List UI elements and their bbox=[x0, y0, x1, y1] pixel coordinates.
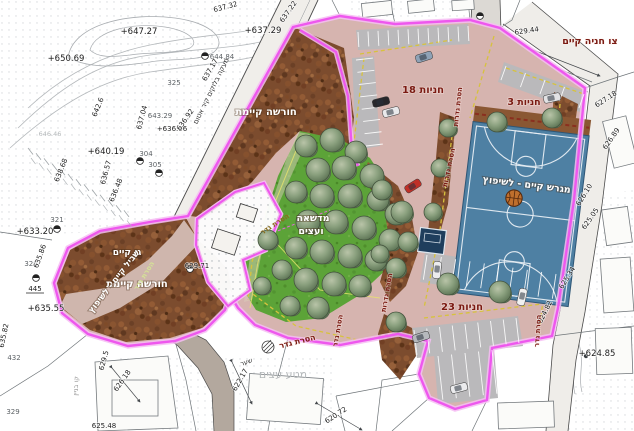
area-label-grove-upper: חורשה קיימת bbox=[235, 107, 297, 118]
olive-tree bbox=[272, 260, 293, 280]
site-plan-canvas: מגרש קיים - לשיפוץ +647.27 +650.69 +637.… bbox=[0, 0, 634, 431]
olive-tree bbox=[322, 272, 347, 296]
manhole-symbol bbox=[33, 275, 40, 282]
parking-23-label: 23 חניות bbox=[441, 302, 483, 313]
olive-tree bbox=[285, 181, 308, 203]
olive-tree bbox=[294, 268, 319, 292]
spot-elevation: 445 bbox=[28, 285, 41, 293]
spot-elevation: +635.55 bbox=[28, 304, 65, 314]
remove-fence-note: הסרת גדר bbox=[533, 314, 543, 347]
olive-tree bbox=[310, 240, 335, 264]
olive-tree bbox=[489, 281, 512, 303]
spot-elevation: +640.19 bbox=[88, 147, 125, 157]
spot-elevation: +624.85 bbox=[579, 349, 616, 359]
spot-elevation: +633.20 bbox=[17, 227, 54, 237]
olive-tree bbox=[372, 180, 393, 200]
olive-tree bbox=[285, 237, 308, 259]
existing-parking-label: צו חניה קיים bbox=[562, 36, 617, 47]
parking-3-label: 3 חניות bbox=[507, 97, 540, 108]
spot-elevation: +637.29 bbox=[245, 26, 282, 36]
olive-tree bbox=[307, 297, 330, 319]
spot-elevation: 305 bbox=[148, 161, 161, 169]
olive-tree bbox=[338, 184, 363, 208]
spot-elevation: 629.71 bbox=[185, 262, 210, 270]
manhole-symbol bbox=[54, 226, 61, 233]
spot-elevation: 432 bbox=[7, 354, 20, 362]
olive-tree bbox=[338, 244, 363, 268]
olive-tree bbox=[386, 312, 407, 332]
olive-tree bbox=[320, 128, 345, 152]
area-label-lawn-2: ועצים bbox=[298, 226, 323, 237]
olive-tree bbox=[306, 158, 331, 182]
spot-elevation: 635.82 bbox=[0, 323, 11, 349]
olive-tree bbox=[352, 216, 377, 240]
area-label-lawn-1: מדשאה bbox=[296, 213, 329, 224]
spot-elevation: 321 bbox=[50, 216, 63, 224]
olive-tree bbox=[542, 108, 563, 128]
spot-elevation: 643.29 bbox=[148, 112, 173, 120]
spot-elevation: 325 bbox=[167, 79, 180, 87]
manhole-symbol bbox=[202, 53, 209, 60]
spot-elevation: 304 bbox=[139, 150, 153, 158]
olive-tree bbox=[391, 201, 414, 223]
manhole-symbol bbox=[137, 158, 144, 165]
orchard-bg-label: מטע עצים bbox=[259, 368, 307, 381]
building-line-label: קו בניין bbox=[71, 376, 80, 396]
olive-tree bbox=[332, 156, 357, 180]
olive-tree bbox=[424, 203, 443, 221]
parking-18-label: 18 חניות bbox=[402, 85, 444, 96]
olive-tree bbox=[398, 232, 419, 252]
olive-tree bbox=[310, 184, 335, 208]
survey-circle-symbol bbox=[262, 340, 274, 353]
manhole-symbol bbox=[156, 170, 163, 177]
spot-elevation: 646.46 bbox=[39, 130, 62, 138]
spot-elevation: 635.86 bbox=[32, 243, 48, 269]
olive-tree bbox=[295, 135, 318, 157]
site-plan-drawing: מגרש קיים - לשיפוץ +647.27 +650.69 +637.… bbox=[0, 0, 634, 431]
spot-elevation: +647.27 bbox=[121, 27, 158, 37]
olive-tree bbox=[253, 277, 272, 295]
manhole-symbol bbox=[477, 13, 484, 20]
olive-tree bbox=[280, 296, 301, 316]
olive-tree bbox=[371, 245, 390, 263]
spot-elevation: 329 bbox=[6, 408, 19, 416]
olive-tree bbox=[349, 275, 372, 297]
parked-car bbox=[432, 261, 442, 279]
spot-elevation: +650.69 bbox=[48, 54, 85, 64]
olive-tree bbox=[487, 112, 508, 132]
spot-elevation: 625.48 bbox=[92, 422, 117, 430]
court-shed bbox=[418, 228, 447, 255]
